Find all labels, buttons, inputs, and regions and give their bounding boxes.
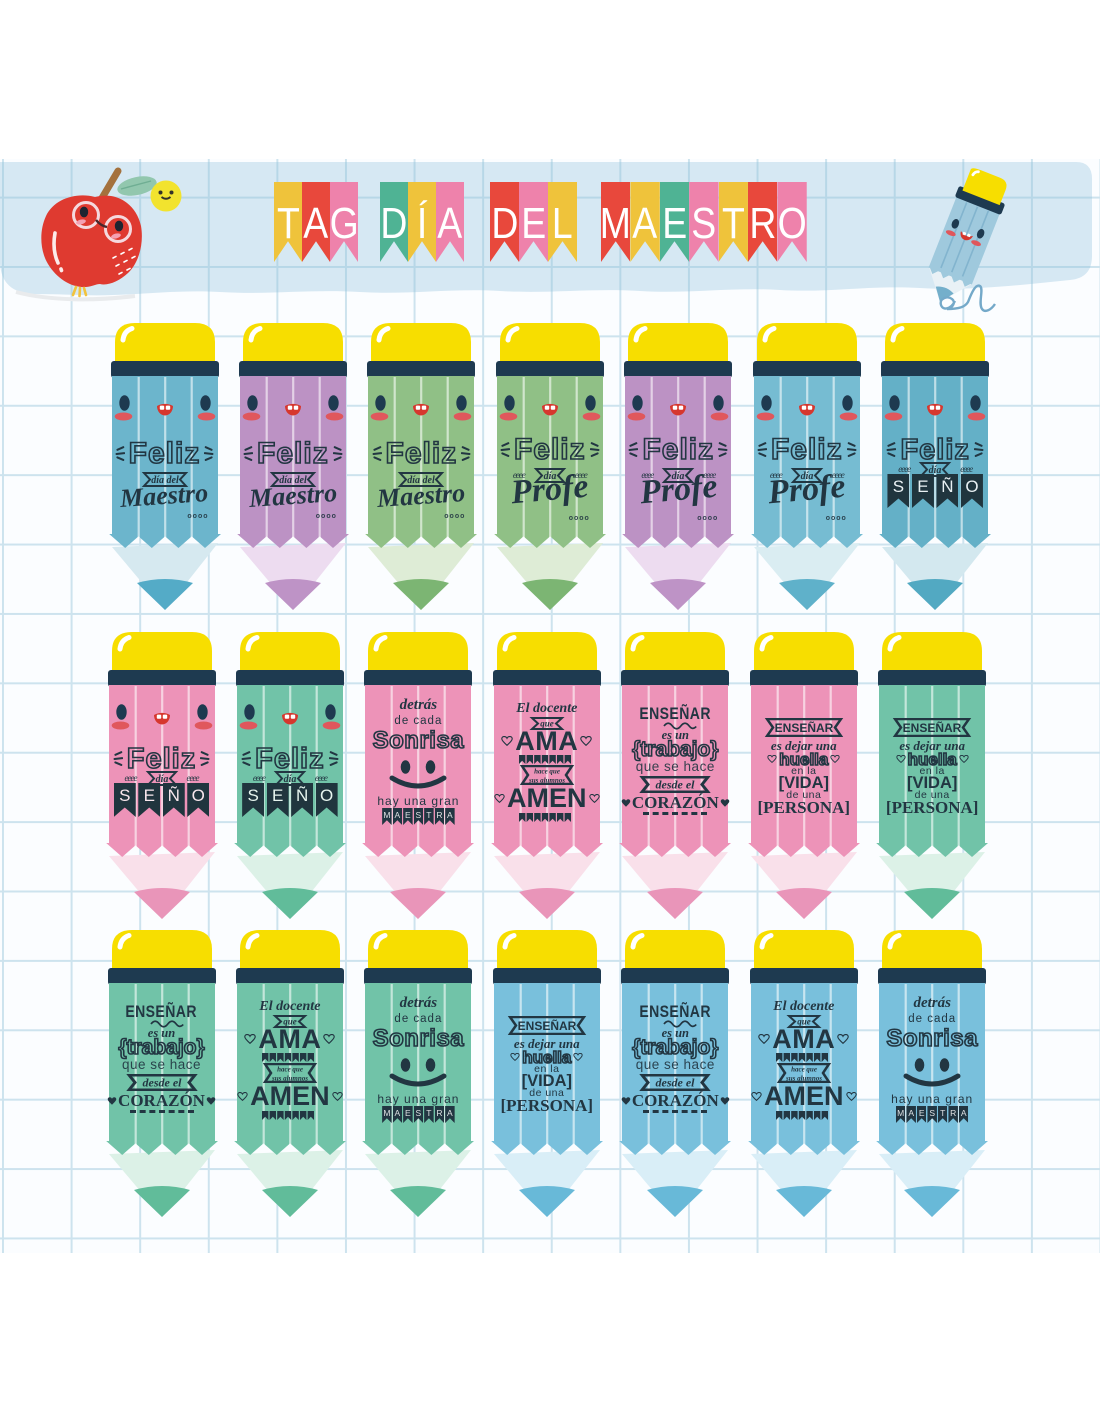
svg-text:ENSEÑAR: ENSEÑAR bbox=[517, 1018, 576, 1033]
svg-text:ENSEÑAR: ENSEÑAR bbox=[774, 720, 833, 735]
svg-text:desde el: desde el bbox=[656, 1076, 696, 1090]
svg-text:hace que: hace que bbox=[277, 1065, 303, 1073]
svg-text:desde el: desde el bbox=[142, 1076, 182, 1090]
svg-text:hace que: hace que bbox=[534, 767, 560, 775]
svg-text:ENSEÑAR: ENSEÑAR bbox=[903, 720, 962, 735]
svg-text:hace que: hace que bbox=[791, 1065, 817, 1073]
svg-text:desde el: desde el bbox=[656, 778, 696, 792]
